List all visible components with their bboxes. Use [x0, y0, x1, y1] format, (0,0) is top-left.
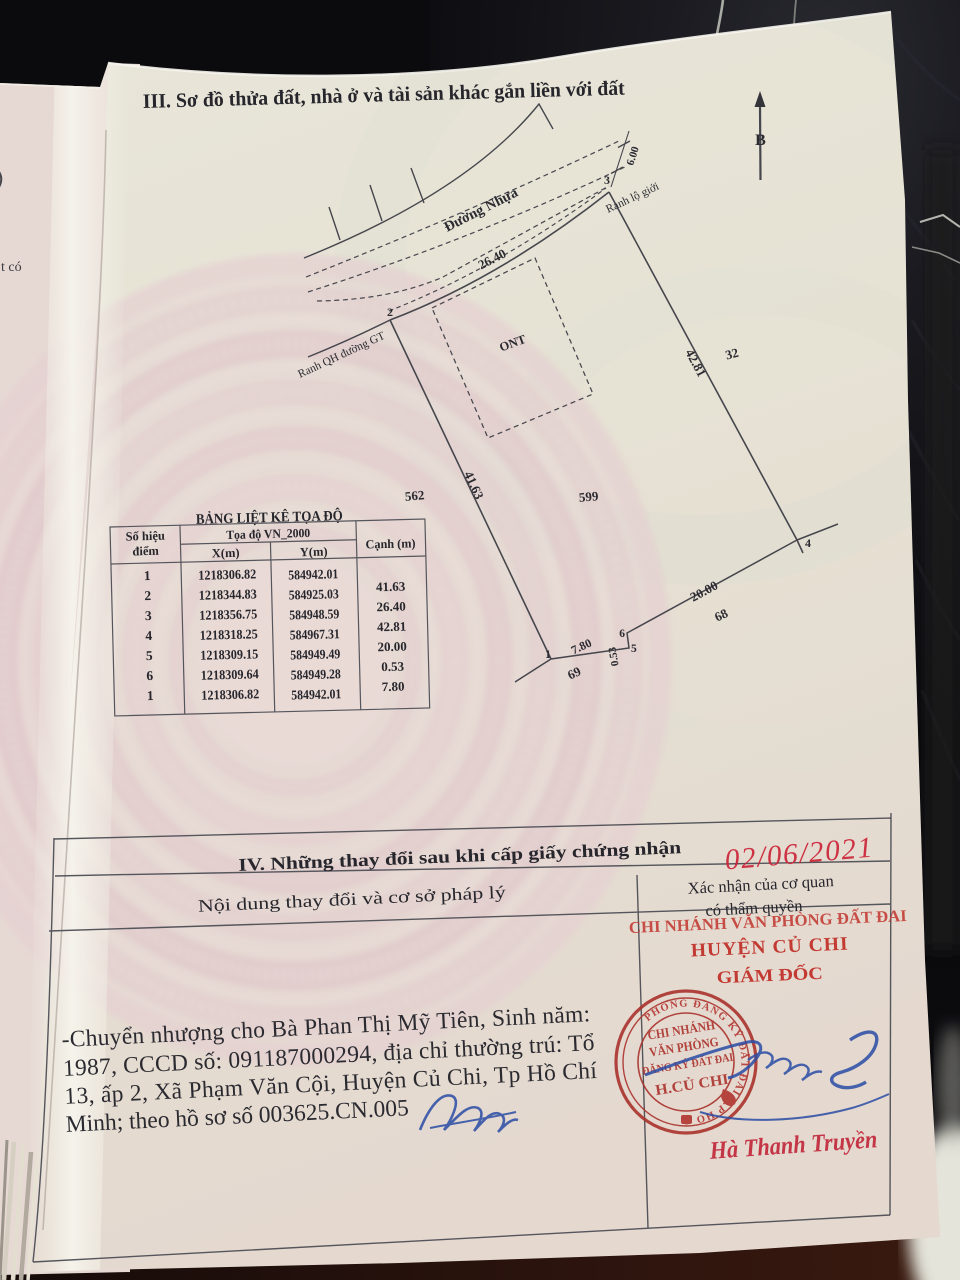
svg-text:1: 1 — [144, 568, 151, 583]
svg-text:584942.01: 584942.01 — [288, 566, 339, 582]
svg-text:Tọa độ VN_2000: Tọa độ VN_2000 — [226, 526, 310, 542]
svg-text:6: 6 — [146, 668, 153, 683]
svg-text:584967.31: 584967.31 — [290, 626, 341, 642]
svg-text:Y(m): Y(m) — [300, 545, 328, 560]
svg-text:X(m): X(m) — [212, 546, 240, 561]
svg-text:2: 2 — [387, 305, 393, 319]
svg-text:1218309.15: 1218309.15 — [200, 646, 259, 662]
svg-text:1218306.82: 1218306.82 — [201, 686, 260, 702]
svg-text:Số hiệu: Số hiệu — [125, 529, 165, 544]
svg-text:1218306.82: 1218306.82 — [198, 566, 257, 582]
svg-text:1: 1 — [147, 688, 154, 703]
svg-text:26.40: 26.40 — [376, 599, 406, 615]
svg-text:42.81: 42.81 — [377, 619, 407, 635]
svg-text:0.53: 0.53 — [381, 659, 405, 675]
svg-text:Cạnh (m): Cạnh (m) — [365, 536, 415, 551]
svg-text:1218309.64: 1218309.64 — [201, 666, 260, 682]
svg-text:584949.28: 584949.28 — [291, 666, 342, 682]
svg-text:1218318.25: 1218318.25 — [200, 626, 259, 642]
svg-text:584925.03: 584925.03 — [289, 586, 340, 602]
svg-text:584948.59: 584948.59 — [289, 606, 340, 622]
svg-text:599: 599 — [578, 488, 599, 505]
svg-text:5: 5 — [146, 648, 153, 663]
svg-text:562: 562 — [404, 487, 425, 504]
svg-text:2: 2 — [144, 588, 151, 603]
svg-text:điểm: điểm — [132, 544, 159, 559]
svg-text:1218344.83: 1218344.83 — [199, 586, 258, 602]
svg-text:3: 3 — [604, 173, 610, 187]
svg-text:584942.01: 584942.01 — [291, 686, 342, 702]
svg-text:t có: t có — [1, 260, 22, 275]
svg-text:B: B — [755, 132, 766, 149]
svg-text:4: 4 — [805, 536, 811, 550]
svg-text:4: 4 — [145, 628, 152, 643]
svg-text:1: 1 — [545, 647, 551, 661]
svg-text:3: 3 — [145, 608, 152, 623]
svg-text:20.00: 20.00 — [377, 639, 407, 655]
svg-text:41.63: 41.63 — [376, 579, 406, 595]
svg-text:5: 5 — [631, 643, 637, 655]
svg-text:584949.49: 584949.49 — [290, 646, 341, 662]
svg-text:6: 6 — [619, 628, 625, 640]
svg-text:7.80: 7.80 — [382, 679, 405, 695]
svg-text:1218356.75: 1218356.75 — [199, 606, 258, 622]
